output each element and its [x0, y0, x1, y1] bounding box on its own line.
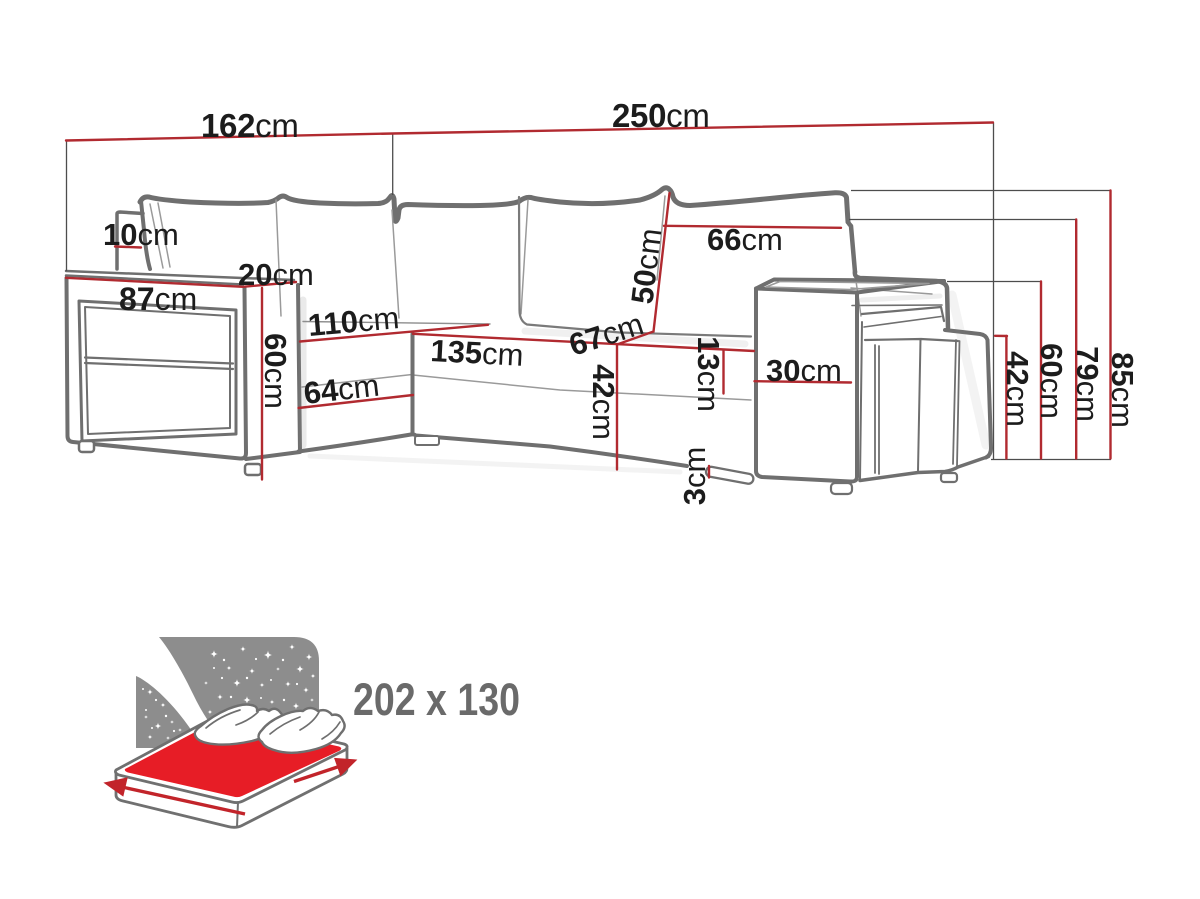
- svg-text:79cm: 79cm: [1070, 346, 1105, 422]
- svg-text:30cm: 30cm: [766, 353, 842, 388]
- svg-text:162cm: 162cm: [201, 107, 299, 144]
- svg-text:10cm: 10cm: [103, 217, 179, 252]
- svg-text:250cm: 250cm: [612, 97, 710, 134]
- svg-text:13cm: 13cm: [691, 336, 726, 412]
- svg-text:66cm: 66cm: [707, 222, 783, 257]
- svg-text:87cm: 87cm: [119, 281, 197, 317]
- svg-text:42cm: 42cm: [586, 364, 621, 440]
- svg-text:42cm: 42cm: [1000, 351, 1035, 427]
- svg-text:135cm: 135cm: [430, 333, 525, 373]
- svg-text:3cm: 3cm: [677, 447, 712, 506]
- svg-text:20cm: 20cm: [238, 257, 314, 292]
- svg-text:60cm: 60cm: [1034, 343, 1069, 419]
- svg-text:202 x 130: 202 x 130: [353, 674, 520, 725]
- svg-text:85cm: 85cm: [1105, 352, 1140, 428]
- svg-text:60cm: 60cm: [258, 333, 293, 409]
